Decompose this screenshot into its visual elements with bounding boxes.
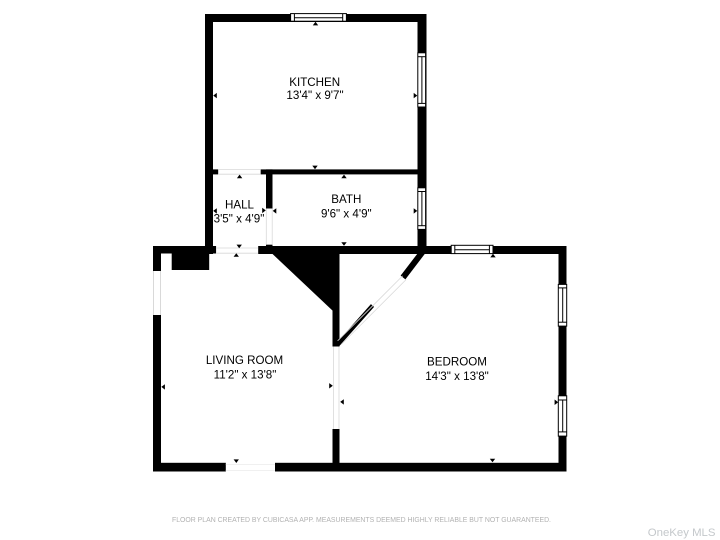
svg-text:13'4" x 9'7": 13'4" x 9'7" bbox=[286, 89, 343, 102]
svg-text:OneKey MLS: OneKey MLS bbox=[648, 527, 716, 539]
svg-text:HALL: HALL bbox=[225, 198, 255, 211]
svg-text:FLOOR PLAN CREATED BY CUBICASA: FLOOR PLAN CREATED BY CUBICASA APP. MEAS… bbox=[172, 517, 551, 524]
svg-text:11'2" x 13'8": 11'2" x 13'8" bbox=[214, 369, 277, 382]
svg-text:BEDROOM: BEDROOM bbox=[427, 356, 487, 369]
svg-text:LIVING ROOM: LIVING ROOM bbox=[206, 354, 283, 367]
svg-text:3'5" x 4'9": 3'5" x 4'9" bbox=[214, 213, 265, 226]
svg-text:9'6" x 4'9": 9'6" x 4'9" bbox=[321, 208, 372, 221]
svg-text:14'3" x 13'8": 14'3" x 13'8" bbox=[425, 370, 489, 383]
svg-text:BATH: BATH bbox=[331, 193, 361, 206]
svg-text:KITCHEN: KITCHEN bbox=[289, 76, 340, 89]
